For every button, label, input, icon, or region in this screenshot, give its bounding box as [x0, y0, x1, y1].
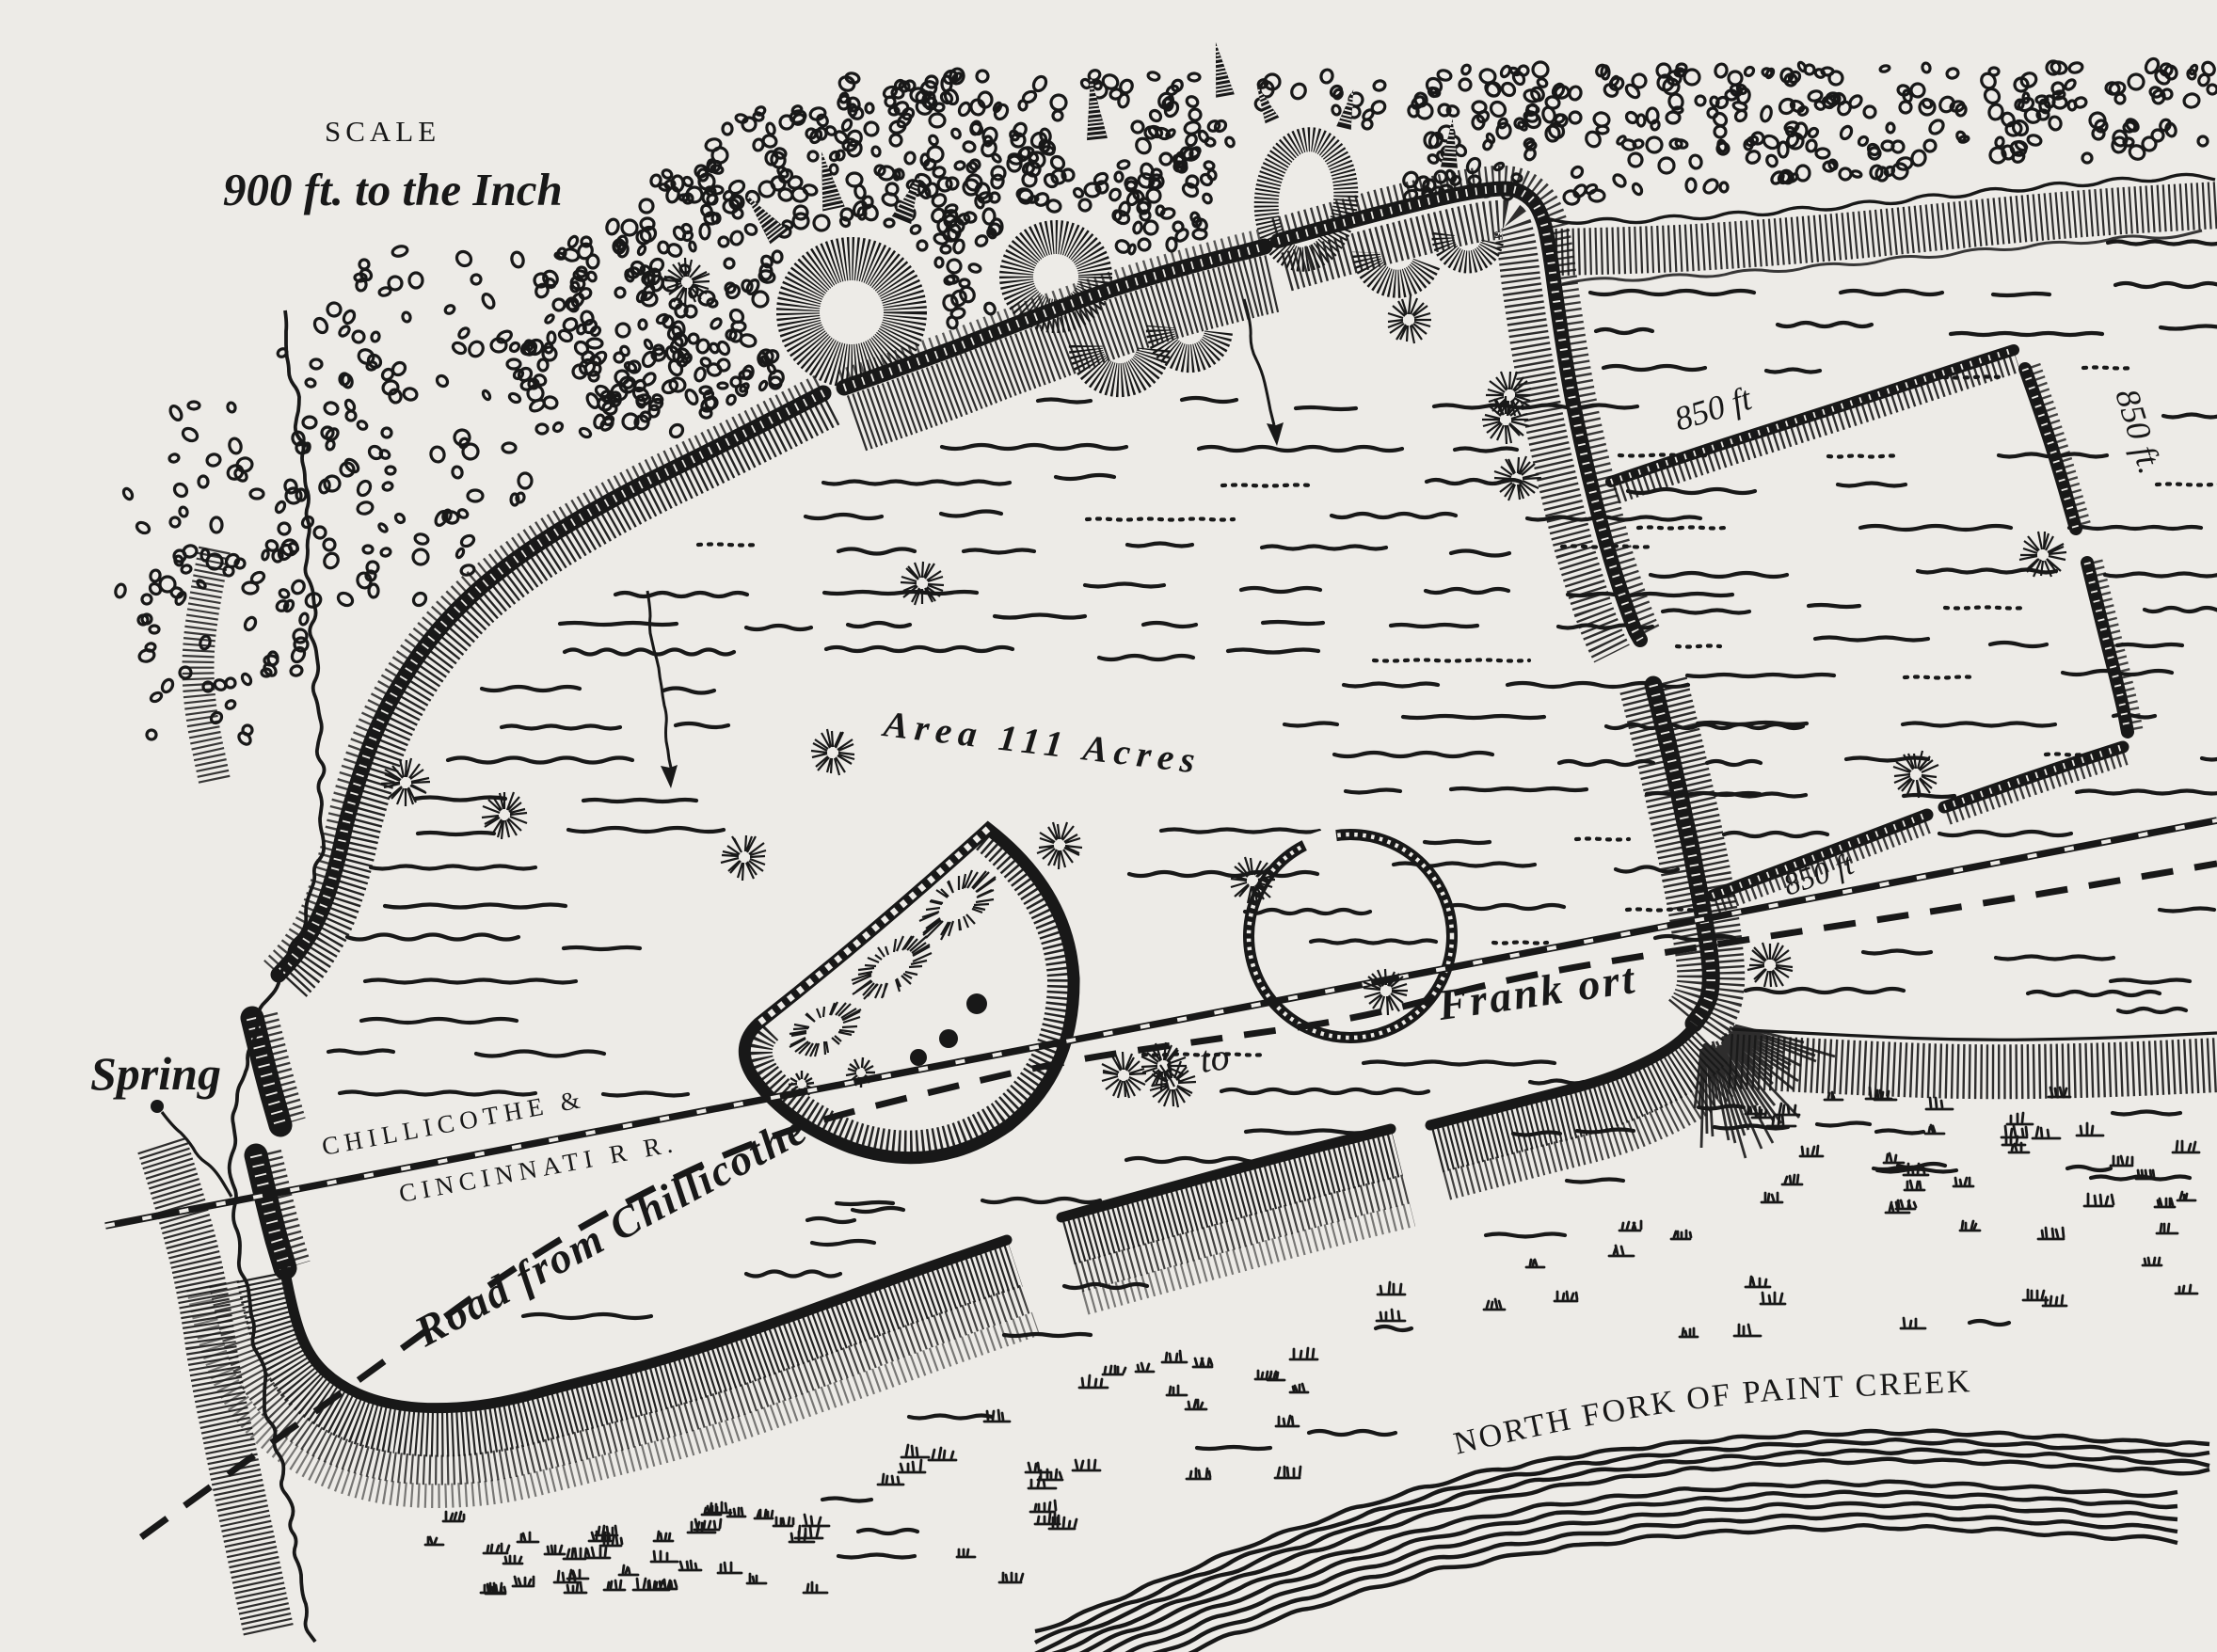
svg-text:Spring: Spring — [90, 1047, 221, 1100]
svg-text:SCALE: SCALE — [325, 115, 440, 148]
svg-text:900 ft. to the Inch: 900 ft. to the Inch — [223, 164, 563, 215]
svg-text:to: to — [1197, 1035, 1232, 1081]
